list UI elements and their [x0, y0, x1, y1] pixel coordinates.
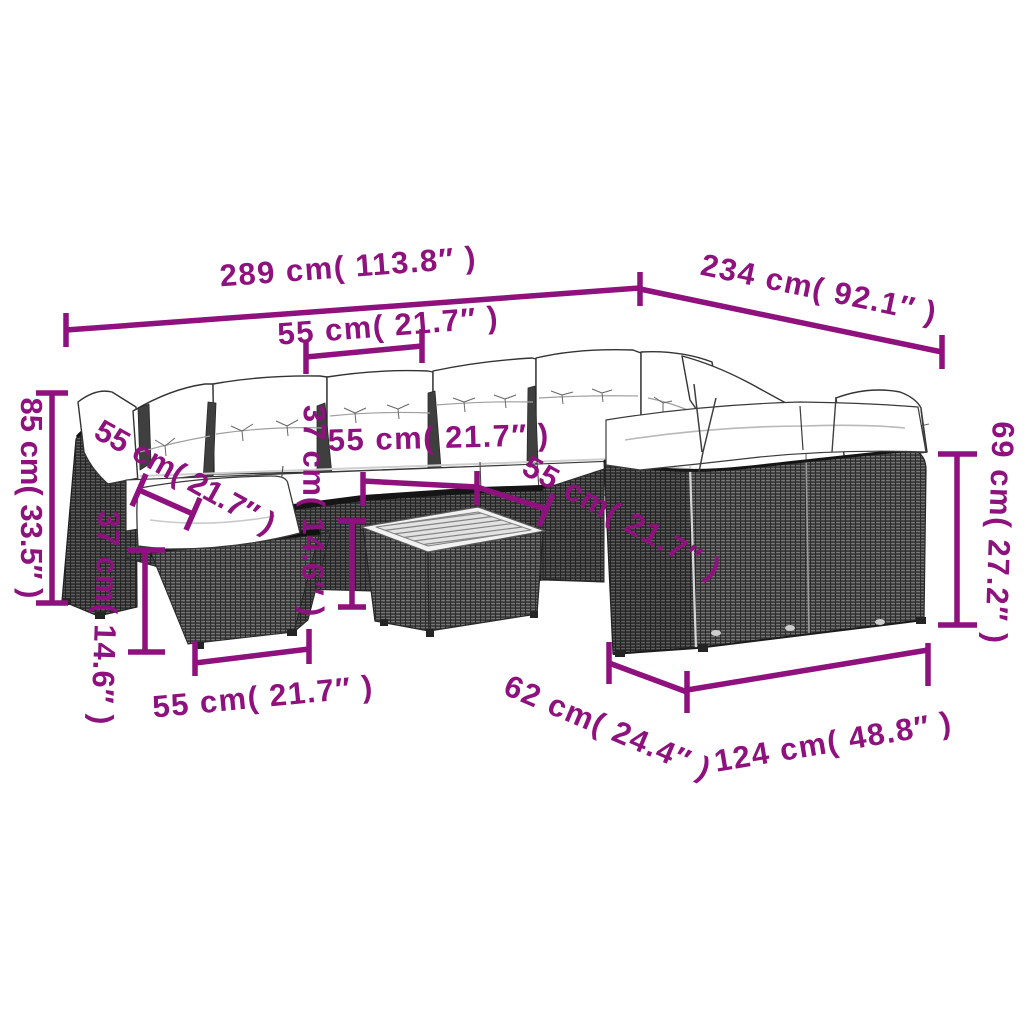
svg-text:55 cm( 21.7″ ): 55 cm( 21.7″ ) [151, 668, 375, 724]
svg-text:124 cm( 48.8″ ): 124 cm( 48.8″ ) [712, 705, 955, 779]
svg-text:55 cm( 21.7″ ): 55 cm( 21.7″ ) [327, 417, 550, 458]
svg-text:37 cm( 14.6″ ): 37 cm( 14.6″ ) [295, 405, 332, 617]
svg-text:85 cm( 33.5″ ): 85 cm( 33.5″ ) [14, 398, 49, 599]
svg-text:37 cm( 14.6″ ): 37 cm( 14.6″ ) [84, 510, 126, 726]
svg-text:69 cm( 27.2″ ): 69 cm( 27.2″ ) [978, 421, 1021, 645]
svg-text:55 cm( 21.7″ ): 55 cm( 21.7″ ) [276, 299, 500, 351]
svg-text:289 cm( 113.8″ ): 289 cm( 113.8″ ) [218, 240, 478, 294]
svg-text:234 cm( 92.1″ ): 234 cm( 92.1″ ) [698, 247, 941, 330]
